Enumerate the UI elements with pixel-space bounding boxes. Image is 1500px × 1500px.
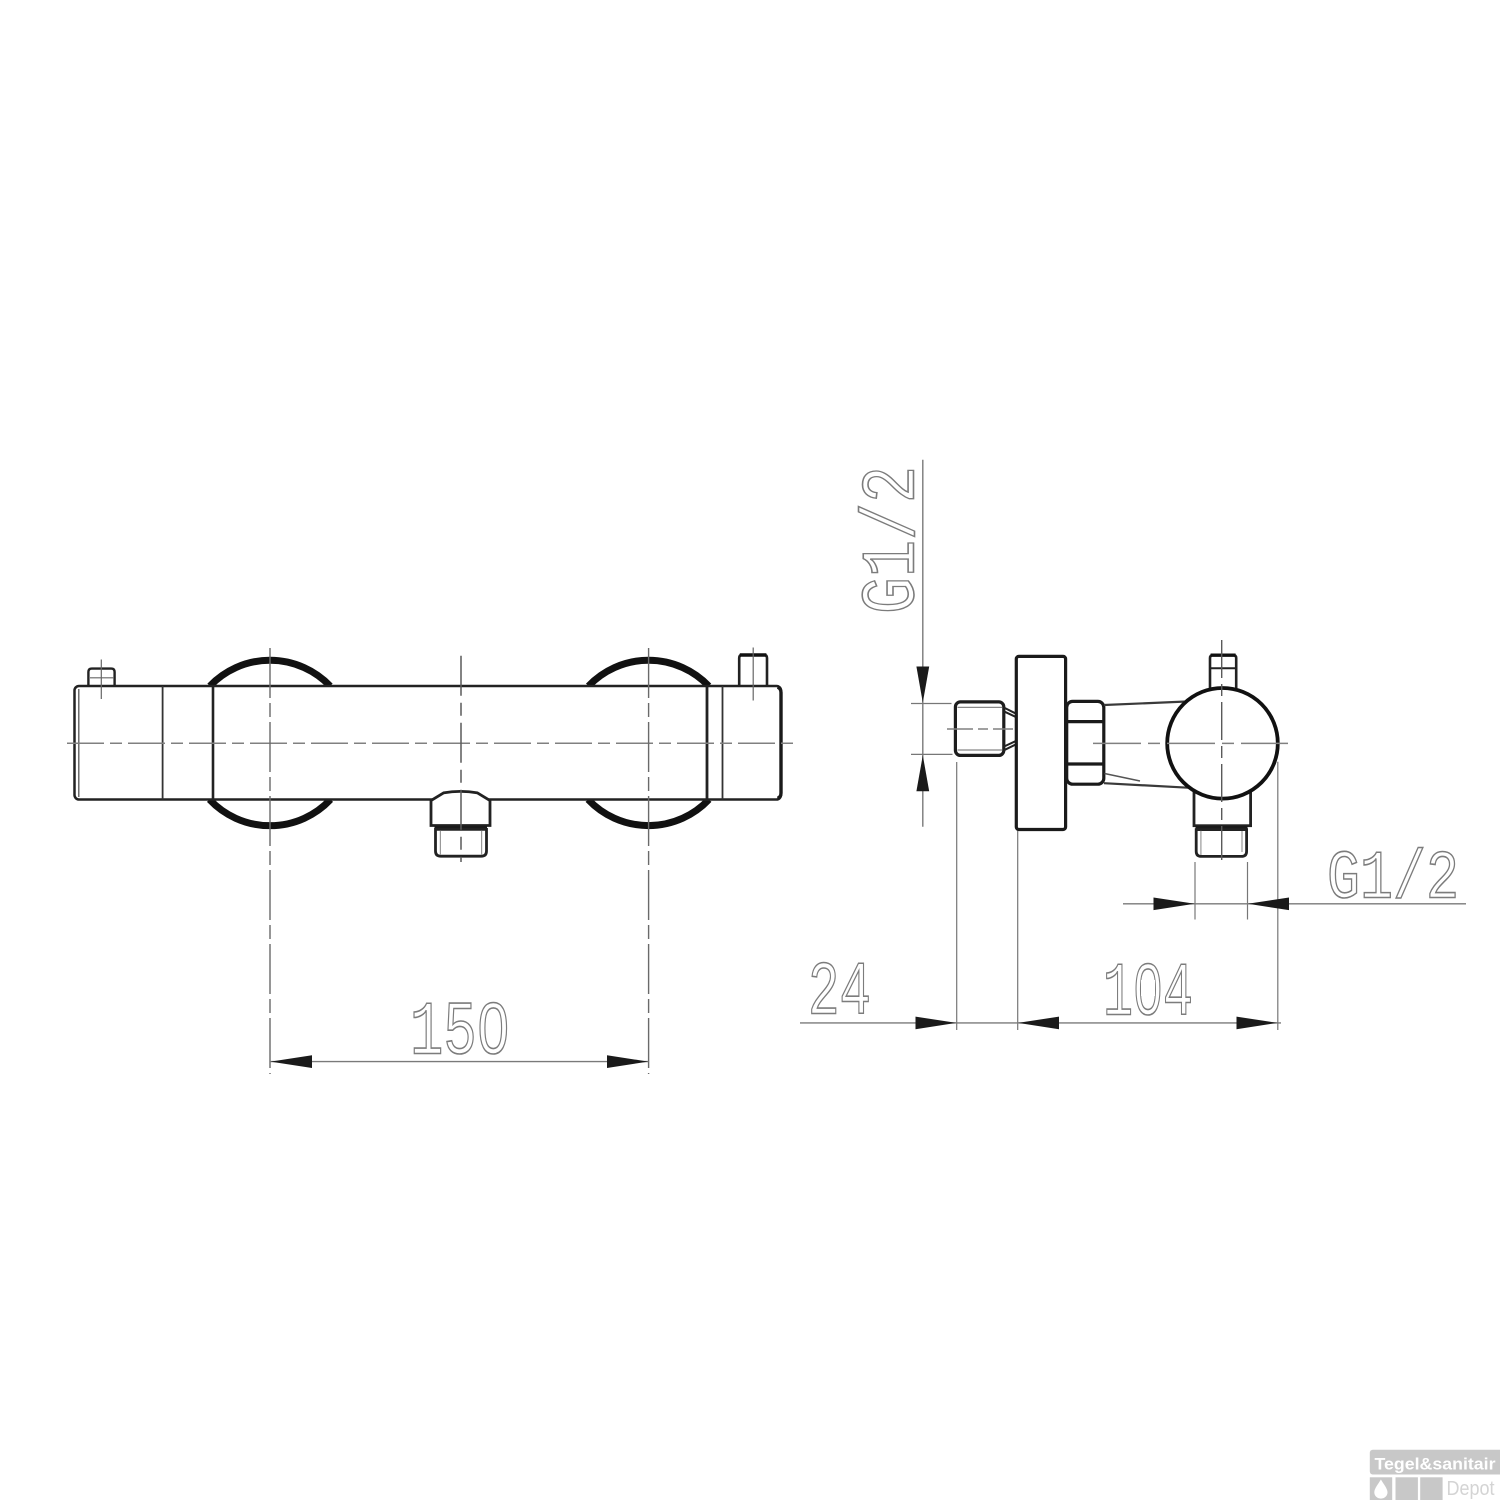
svg-text:G1/2: G1/2	[851, 466, 937, 614]
svg-text:G1/2: G1/2	[1327, 841, 1459, 919]
svg-text:Depot: Depot	[1447, 1477, 1495, 1500]
svg-text:Tegel&sanitair: Tegel&sanitair	[1375, 1455, 1497, 1473]
svg-text:24: 24	[808, 951, 871, 1037]
